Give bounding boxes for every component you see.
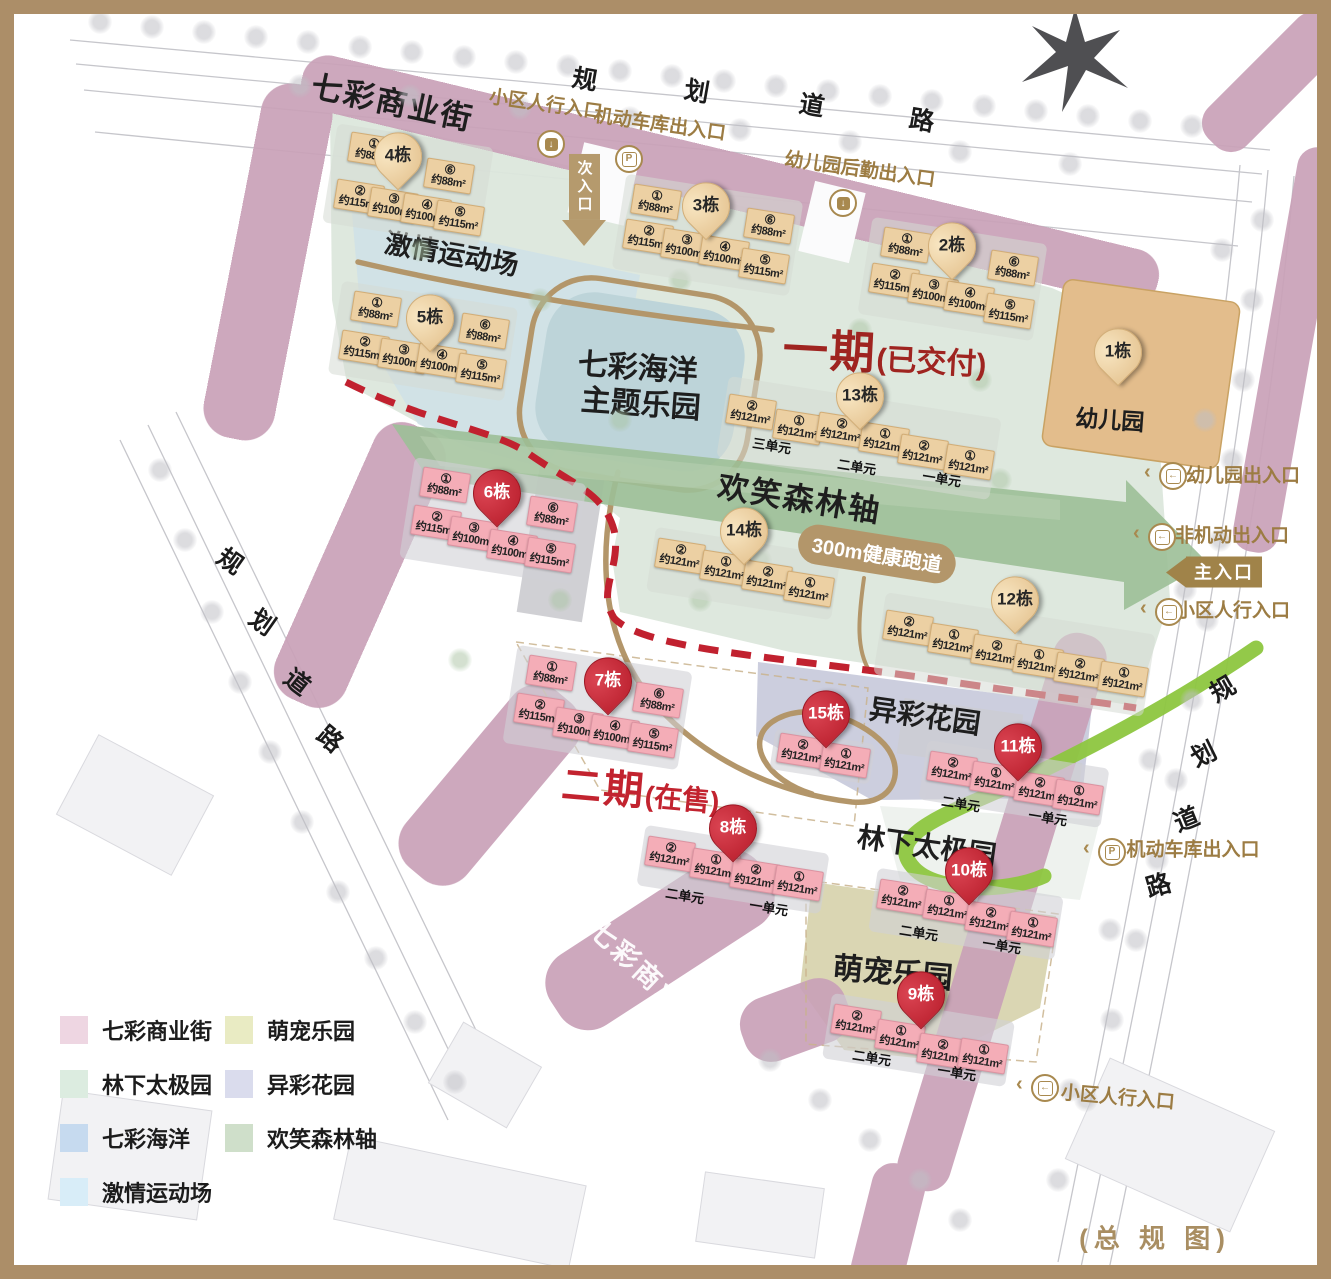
entry-glyph: ← <box>1038 1081 1053 1096</box>
building-name: 6栋 <box>473 469 521 515</box>
secondary-entrance-label: 次入口 <box>569 154 600 220</box>
building-pin-15栋: 15栋 <box>802 690 850 738</box>
building-name: 9栋 <box>897 971 945 1017</box>
arrow-down-icon <box>562 220 606 246</box>
tree-icon <box>504 50 528 74</box>
entry-glyph: ← <box>1162 605 1177 620</box>
tree-icon <box>1138 748 1162 772</box>
legend-item: 林下太极园 <box>60 1068 212 1100</box>
tree-icon <box>948 1208 972 1232</box>
entrance-gate-icon: ← <box>1031 1074 1059 1102</box>
legend-item: 萌宠乐园 <box>225 1014 355 1046</box>
legend-label: 萌宠乐园 <box>267 1014 355 1046</box>
legend-label: 激情运动场 <box>102 1176 212 1208</box>
entrance-gate-icon: ← <box>1148 523 1176 551</box>
building-name: 12栋 <box>991 576 1039 622</box>
phase1-label: 一期(已交付) <box>781 312 988 388</box>
north-ornament-icon <box>1022 8 1128 112</box>
entrance-label: 小区人行入口 <box>1176 596 1290 623</box>
building-pin-7栋: 7栋 <box>584 657 632 705</box>
tree-icon <box>88 10 112 34</box>
tree-icon <box>1076 104 1100 128</box>
phase1-status: (已交付) <box>876 343 988 382</box>
legend-swatch <box>60 1070 88 1098</box>
tree-icon <box>1180 114 1204 138</box>
tree-icon <box>403 1010 427 1034</box>
building-name: 2栋 <box>928 222 976 268</box>
building-pin-10栋: 10栋 <box>945 847 993 895</box>
tree-icon <box>244 25 268 49</box>
tree-icon <box>528 288 552 312</box>
tree-icon <box>408 238 432 262</box>
building-name: 3栋 <box>682 182 730 228</box>
kindergarten-label: 幼儿园 <box>1074 399 1145 438</box>
legend-label: 七彩商业街 <box>102 1014 212 1046</box>
tree-icon <box>288 74 312 98</box>
parking-glyph: P <box>622 152 637 167</box>
building-name: 15栋 <box>802 690 850 736</box>
main-entrance-arrow: 主入口 <box>1166 557 1262 588</box>
tree-icon <box>348 35 372 59</box>
legend-swatch <box>60 1178 88 1206</box>
tree-icon <box>548 588 572 612</box>
tree-icon <box>972 94 996 118</box>
entry-glyph: ↓ <box>837 197 850 210</box>
main-entrance-label: 主入口 <box>1186 557 1262 588</box>
tree-icon <box>1250 208 1274 232</box>
tree-icon <box>296 30 320 54</box>
legend-item: 欢笑森林轴 <box>225 1122 377 1154</box>
tree-icon <box>200 600 224 624</box>
tree-icon <box>1240 288 1264 312</box>
legend-label: 欢笑森林轴 <box>267 1122 377 1154</box>
building-pin-6栋: 6栋 <box>473 469 521 517</box>
legend-swatch <box>60 1016 88 1044</box>
building-pin-12栋: 12栋 <box>991 576 1039 624</box>
chevron-left-icon: ‹ <box>1083 837 1090 860</box>
entrance-gate-icon: ↓ <box>537 130 565 158</box>
entry-glyph: ← <box>1155 530 1170 545</box>
building-name: 7栋 <box>584 657 632 703</box>
entrance-label: 幼儿园出入口 <box>1186 461 1300 488</box>
chevron-left-icon: ‹ <box>1133 522 1140 545</box>
entrance-parking-icon: P <box>615 145 643 173</box>
ocean-park-label-line2: 主题乐园 <box>580 375 703 427</box>
building-name: 4栋 <box>374 132 422 178</box>
tree-icon <box>1210 238 1234 262</box>
tree-icon <box>258 740 282 764</box>
tree-icon <box>326 880 350 904</box>
legend-label: 异彩花园 <box>267 1068 355 1100</box>
tree-icon <box>838 130 862 154</box>
building-pin-14栋: 14栋 <box>720 507 768 555</box>
tree-icon <box>192 20 216 44</box>
building-pin-1栋: 1栋 <box>1094 328 1142 376</box>
chevron-left-icon: ‹ <box>1144 461 1151 484</box>
entrance-gate-icon: ← <box>1159 462 1187 490</box>
tree-icon <box>1058 152 1082 176</box>
tree-icon <box>1024 99 1048 123</box>
legend-label: 七彩海洋 <box>102 1122 190 1154</box>
building-pin-8栋: 8栋 <box>709 804 757 852</box>
building-name: 8栋 <box>709 804 757 850</box>
chevron-left-icon: ‹ <box>1016 1073 1023 1096</box>
entrance-gate-icon: ↓ <box>829 189 857 217</box>
tree-icon <box>858 1128 882 1152</box>
tree-icon <box>808 1088 832 1112</box>
tree-icon <box>1180 688 1204 712</box>
building-pin-9栋: 9栋 <box>897 971 945 1019</box>
tree-icon <box>364 946 388 970</box>
building-name: 1栋 <box>1094 328 1142 374</box>
tree-icon <box>1046 1168 1070 1192</box>
tree-icon <box>1193 408 1217 432</box>
building-name: 11栋 <box>994 723 1042 769</box>
tree-icon <box>758 1048 782 1072</box>
building-pin-2栋: 2栋 <box>928 222 976 270</box>
tree-icon <box>728 118 752 142</box>
tree-icon <box>448 648 472 672</box>
building-pin-11栋: 11栋 <box>994 723 1042 771</box>
building-pin-13栋: 13栋 <box>836 372 884 420</box>
masterplan-map: 七彩商业街 激情运动场 七彩海洋 主题乐园 欢笑森林轴 异彩花园 林下太极园 萌… <box>0 0 1331 1279</box>
entrance-label: 非机动出入口 <box>1175 521 1289 548</box>
tree-icon <box>1098 918 1122 942</box>
tree-icon <box>1128 109 1152 133</box>
masterplan-frame: 七彩商业街 激情运动场 七彩海洋 主题乐园 欢笑森林轴 异彩花园 林下太极园 萌… <box>0 0 1331 1279</box>
arrow-left-icon <box>1166 557 1186 587</box>
tree-icon <box>452 45 476 69</box>
building-pin-3栋: 3栋 <box>682 182 730 230</box>
tree-icon <box>290 810 314 834</box>
tree-icon <box>400 40 424 64</box>
legend-item: 激情运动场 <box>60 1176 212 1208</box>
tree-icon <box>948 140 972 164</box>
legend-swatch <box>60 1124 88 1152</box>
legend-label: 林下太极园 <box>102 1068 212 1100</box>
phase1-title: 一期 <box>782 323 879 379</box>
legend-swatch <box>225 1124 253 1152</box>
tree-icon <box>140 15 164 39</box>
tree-icon <box>908 1168 932 1192</box>
legend-item: 七彩商业街 <box>60 1014 212 1046</box>
tree-icon <box>173 528 197 552</box>
entry-glyph: ← <box>1166 469 1181 484</box>
phase2-title: 二期 <box>560 763 648 814</box>
entrance-parking-icon: P <box>1098 838 1126 866</box>
tree-icon <box>148 458 172 482</box>
tree-icon <box>228 670 252 694</box>
legend-swatch <box>225 1016 253 1044</box>
tree-icon <box>868 84 892 108</box>
tree-icon <box>1231 368 1255 392</box>
overview-title: (总 规 图) <box>1079 1219 1231 1256</box>
tree-icon <box>443 1070 467 1094</box>
tree-icon <box>1100 1008 1124 1032</box>
building-name: 5栋 <box>406 294 454 340</box>
tree-icon <box>398 84 422 108</box>
building-name: 14栋 <box>720 507 768 553</box>
chevron-left-icon: ‹ <box>1140 597 1147 620</box>
tree-icon <box>608 408 632 432</box>
building-pin-5栋: 5栋 <box>406 294 454 342</box>
tree-icon <box>1164 768 1188 792</box>
parking-glyph: P <box>1105 845 1120 860</box>
legend-item: 七彩海洋 <box>60 1122 190 1154</box>
tree-icon <box>1124 928 1148 952</box>
building-name: 13栋 <box>836 372 884 418</box>
building-name: 10栋 <box>945 847 993 893</box>
legend-item: 异彩花园 <box>225 1068 355 1100</box>
legend-swatch <box>225 1070 253 1098</box>
entrance-label: 机动车库出入口 <box>1126 835 1259 862</box>
secondary-entrance-arrow: 次入口 <box>562 154 606 246</box>
entry-glyph: ↓ <box>545 138 558 151</box>
building-pin-4栋: 4栋 <box>374 132 422 180</box>
entrance-gate-icon: ← <box>1155 598 1183 626</box>
